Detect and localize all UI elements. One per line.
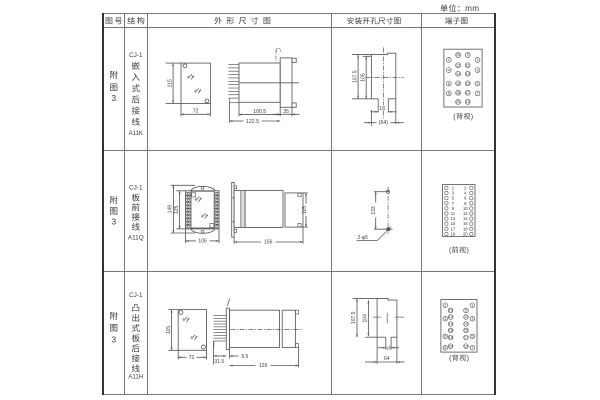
svg-text:15: 15: [464, 329, 468, 333]
svg-text:CJ-1: CJ-1: [129, 292, 143, 299]
svg-text:6: 6: [444, 335, 446, 339]
svg-text:1: 1: [476, 58, 478, 62]
svg-text:CJ-1: CJ-1: [129, 52, 143, 59]
svg-text:13: 13: [464, 322, 468, 326]
svg-text:19: 19: [464, 344, 468, 348]
svg-text:16: 16: [379, 106, 385, 112]
svg-text:64: 64: [384, 356, 390, 362]
svg-text:7: 7: [471, 346, 473, 350]
svg-text:72: 72: [193, 109, 199, 115]
svg-text:35: 35: [283, 109, 289, 115]
svg-text:CJ-1: CJ-1: [129, 185, 143, 192]
svg-text:31.5: 31.5: [214, 359, 224, 365]
svg-text:20: 20: [463, 231, 468, 236]
svg-text:115: 115: [166, 326, 172, 334]
svg-text:): ): [467, 355, 469, 362]
svg-text:): ): [471, 114, 473, 121]
svg-text:104: 104: [363, 314, 369, 323]
svg-text:17: 17: [464, 336, 468, 340]
svg-text:4: 4: [448, 68, 450, 72]
svg-text:72: 72: [189, 355, 195, 361]
svg-text:16: 16: [448, 329, 452, 333]
svg-text:126: 126: [259, 363, 268, 369]
svg-text:105: 105: [360, 73, 366, 82]
svg-text:3: 3: [111, 334, 116, 344]
svg-text:16: 16: [456, 81, 460, 85]
svg-text:18: 18: [456, 91, 460, 95]
svg-text:9: 9: [467, 53, 469, 57]
svg-text:3: 3: [111, 93, 116, 103]
svg-text:20: 20: [448, 344, 452, 348]
svg-text:(: (: [449, 247, 452, 254]
svg-text:(64): (64): [379, 120, 388, 126]
svg-text:14: 14: [456, 72, 460, 76]
svg-text:A11Q: A11Q: [128, 234, 144, 241]
svg-text:11: 11: [466, 63, 470, 67]
svg-text:(: (: [453, 114, 456, 121]
svg-text:6: 6: [448, 82, 450, 86]
svg-text:100.5: 100.5: [253, 109, 266, 115]
svg-text:10: 10: [448, 309, 452, 313]
svg-text:14: 14: [448, 322, 452, 326]
svg-text:13: 13: [466, 72, 470, 76]
svg-text:m: m: [465, 4, 472, 13]
svg-text:3: 3: [476, 68, 478, 72]
svg-text:3: 3: [471, 317, 473, 321]
svg-text:3: 3: [111, 217, 116, 227]
svg-text:9.5: 9.5: [241, 354, 248, 360]
svg-text:A11H: A11H: [128, 373, 143, 380]
svg-text:156: 156: [264, 240, 273, 246]
svg-text:10: 10: [456, 53, 460, 57]
svg-text:18: 18: [448, 336, 452, 340]
svg-text:12: 12: [448, 315, 452, 319]
svg-text:115: 115: [302, 206, 308, 214]
svg-text:8: 8: [448, 92, 450, 96]
svg-text:12: 12: [456, 63, 460, 67]
svg-text:133: 133: [371, 206, 377, 215]
svg-text:15: 15: [466, 81, 470, 85]
svg-text:7: 7: [476, 92, 478, 96]
svg-text:A11K: A11K: [129, 131, 143, 137]
svg-text:125: 125: [174, 205, 180, 214]
svg-text:9: 9: [465, 309, 467, 313]
svg-text:19: 19: [451, 231, 456, 236]
svg-text:107.5: 107.5: [351, 311, 357, 324]
svg-text:11: 11: [464, 315, 468, 319]
svg-text:19: 19: [466, 100, 470, 104]
svg-text:20: 20: [456, 100, 460, 104]
svg-text:2-φ5: 2-φ5: [357, 235, 368, 241]
svg-text:16: 16: [386, 346, 392, 351]
svg-text:17: 17: [466, 91, 470, 95]
svg-text:149: 149: [168, 205, 174, 214]
svg-text:105: 105: [198, 239, 207, 245]
svg-text:2: 2: [444, 303, 446, 307]
svg-text:2: 2: [448, 58, 450, 62]
svg-text:1: 1: [471, 303, 473, 307]
svg-text:(: (: [449, 355, 452, 362]
svg-text:8: 8: [444, 346, 446, 350]
svg-text:122.5: 122.5: [246, 119, 259, 125]
svg-text:m: m: [472, 4, 479, 13]
svg-text:5: 5: [471, 335, 473, 339]
svg-text:115: 115: [167, 79, 173, 87]
svg-text:107.5: 107.5: [352, 70, 358, 83]
svg-text:5: 5: [476, 82, 478, 86]
svg-text:): ): [467, 247, 469, 254]
svg-text:4: 4: [444, 317, 446, 321]
